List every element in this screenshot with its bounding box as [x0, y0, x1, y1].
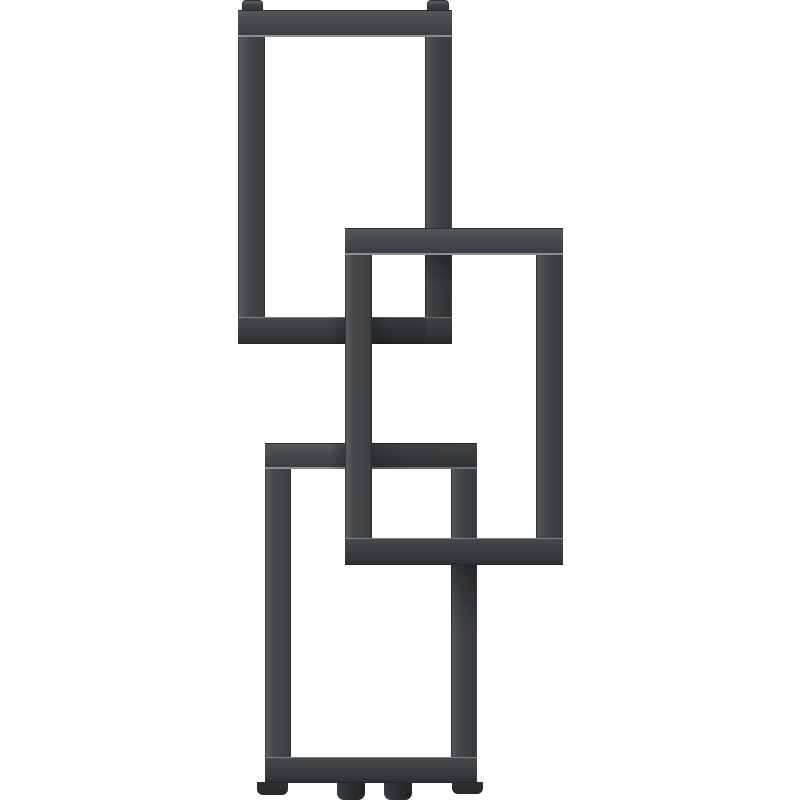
radiator-product-image: [0, 0, 800, 800]
radiator-scene: [0, 0, 800, 800]
top-loop-frame-left-bar: [238, 37, 265, 317]
bottom-loop-frame-left-bar: [265, 469, 291, 757]
middle-loop-frame-bottom-bar: [345, 538, 563, 565]
foot-left: [257, 782, 288, 795]
middle-loop-frame-top-bar: [345, 228, 563, 255]
middle-loop-frame-right-bar: [536, 255, 563, 538]
pipe-connection-left: [337, 782, 365, 800]
top-loop-frame-top-bar: [238, 10, 452, 37]
foot-right: [452, 782, 483, 794]
bottom-loop-frame-bottom-bar: [265, 757, 477, 783]
middle-loop-frame-left-bar: [345, 255, 372, 538]
pipe-connection-right: [384, 782, 412, 800]
middle-loop-frame: [345, 228, 563, 565]
